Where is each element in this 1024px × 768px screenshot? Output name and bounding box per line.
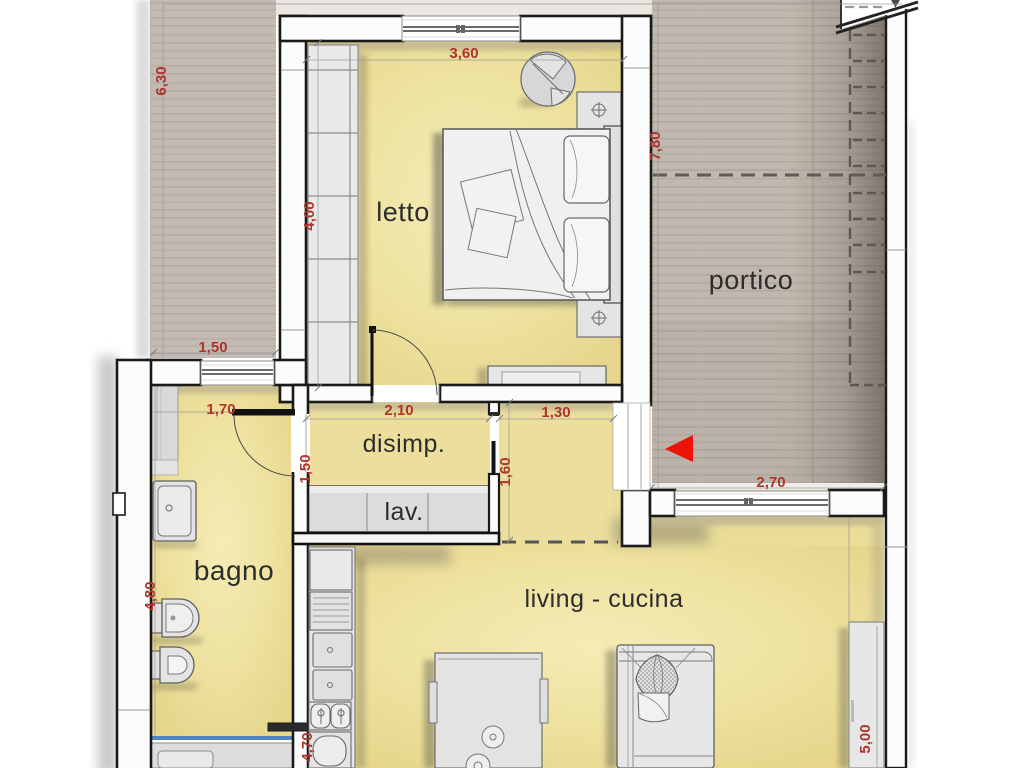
svg-text:lav.: lav. [384, 498, 423, 526]
svg-text:portico: portico [709, 265, 794, 295]
svg-text:bagno: bagno [194, 555, 274, 586]
svg-text:4,00: 4,00 [301, 201, 318, 230]
svg-text:2,70: 2,70 [756, 474, 785, 491]
svg-text:4,70: 4,70 [299, 732, 316, 761]
svg-text:1,70: 1,70 [206, 401, 235, 418]
svg-text:letto: letto [376, 197, 430, 227]
svg-text:1,30: 1,30 [541, 404, 570, 421]
svg-text:3,60: 3,60 [449, 45, 478, 62]
svg-text:disimp.: disimp. [363, 430, 446, 458]
svg-text:4,80: 4,80 [142, 581, 159, 610]
svg-text:5,00: 5,00 [857, 724, 874, 753]
svg-text:1,50: 1,50 [297, 454, 314, 483]
svg-text:1,50: 1,50 [198, 339, 227, 356]
svg-text:6,30: 6,30 [153, 66, 170, 95]
svg-text:2,10: 2,10 [384, 402, 413, 419]
svg-text:living - cucina: living - cucina [525, 585, 684, 613]
svg-text:1,60: 1,60 [497, 457, 514, 486]
svg-text:7,80: 7,80 [647, 131, 664, 160]
